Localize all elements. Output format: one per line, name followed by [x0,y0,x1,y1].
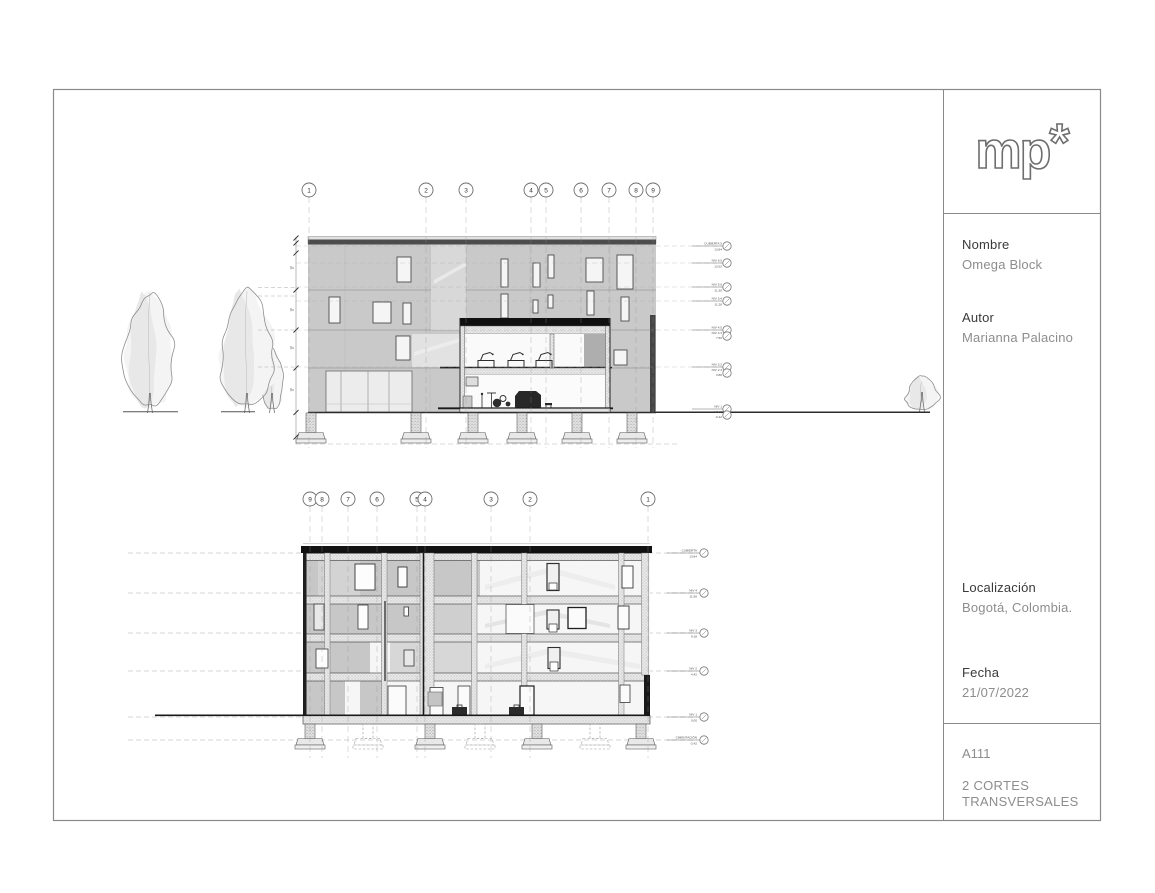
logo-mp: mp* [975,125,1067,177]
section-top-footings [296,413,647,443]
grid-number: 6 [375,496,379,503]
footing [363,724,373,739]
footing [627,413,637,433]
level-label: NIV 2.3 [712,368,723,372]
level-label: 7.56 [716,336,722,340]
grid-number: 4 [423,496,427,503]
level-label: 9.18 [691,634,697,638]
level-label: 11.28 [714,302,722,306]
level-label: 13.84 [714,247,722,251]
level-label: -0.42 [715,415,722,419]
grid-number: 5 [544,187,548,194]
level-label: 4.42 [691,672,697,676]
footing [306,413,316,433]
grid-number: 8 [320,496,324,503]
level-label: 0.00 [691,718,697,722]
section-bottom-grid-heads: 987654321 [303,492,655,506]
field-fecha: Fecha 21/07/2022 [962,664,1092,701]
grid-number: 3 [464,187,468,194]
grid-number: 3 [489,496,493,503]
level-label: NIV 1 [689,713,697,717]
field-label: Nombre [962,236,1092,253]
level-label: NIV 3.2 [712,363,723,367]
section-top-grid-heads: 123456789 [302,183,660,197]
grid-number: 2 [528,496,532,503]
footing [411,413,421,433]
level-label: 11.90 [689,594,697,598]
tree-sketch [122,291,175,413]
level-label: 11.30 [714,288,722,292]
field-value: Bogotá, Colombia. [962,599,1092,616]
section-bottom-footings [295,724,656,749]
level-label: NIV 6.5 [712,259,723,263]
grid-number: 7 [346,496,350,503]
field-value: Omega Block [962,256,1092,273]
field-value: Marianna Palacino [962,329,1092,346]
footing [468,413,478,433]
level-label: NIV 5.6 [712,283,723,287]
footing [425,724,435,739]
level-label: NIV 3 [689,629,697,633]
field-label: Localización [962,579,1092,596]
grid-number: 9 [308,496,312,503]
logo-asterisk-icon: * [1049,114,1067,172]
logo: mp* [943,89,1100,213]
field-value: 21/07/2022 [962,684,1092,701]
grid-number: 4 [529,187,533,194]
tree-sketch [904,376,940,412]
grid-number: 1 [646,496,650,503]
level-label: CUBIERTA 5 [704,242,722,246]
grid-number: 8 [634,187,638,194]
level-label: CUBIERTA [682,549,698,553]
level-label: 13.84 [689,554,697,558]
footing [636,724,646,739]
footing [475,724,485,739]
level-label: NIV 4 [689,589,697,593]
sheet-number: A111 [962,746,990,761]
field-label: Fecha [962,664,1092,681]
footing [532,724,542,739]
section-cut [438,318,613,413]
level-label: 3.88 [716,373,722,377]
level-label: NIV 1 [714,405,722,409]
level-label: NIV 4.3 [712,331,723,335]
footing [590,724,600,739]
field-autor: Autor Marianna Palacino [962,309,1092,346]
level-label: CIMENTACIÓN [676,735,697,740]
grid-number: 2 [424,187,428,194]
level-label: NIV 2 [689,667,697,671]
field-label: Autor [962,309,1092,326]
grid-number: 6 [579,187,583,194]
level-label: NIV 5.4 [712,297,723,301]
sheet-page: CUBIERTA 513.84NIV 6.513.02NIV 5.611.30N… [0,0,1155,893]
level-label: 13.02 [714,264,722,268]
level-label: NIV 4.5 [712,326,723,330]
field-nombre: Nombre Omega Block [962,236,1092,273]
footing [517,413,527,433]
level-label: NIV 0 [714,410,722,414]
field-localizacion: Localización Bogotá, Colombia. [962,579,1092,616]
sheet-title: 2 CORTES TRANSVERSALES [962,778,1074,810]
grid-number: 1 [307,187,311,194]
footing [572,413,582,433]
grid-number: 9 [651,187,655,194]
grid-number: 7 [607,187,611,194]
section-bottom-building [155,544,652,724]
level-label: -2.42 [690,741,697,745]
